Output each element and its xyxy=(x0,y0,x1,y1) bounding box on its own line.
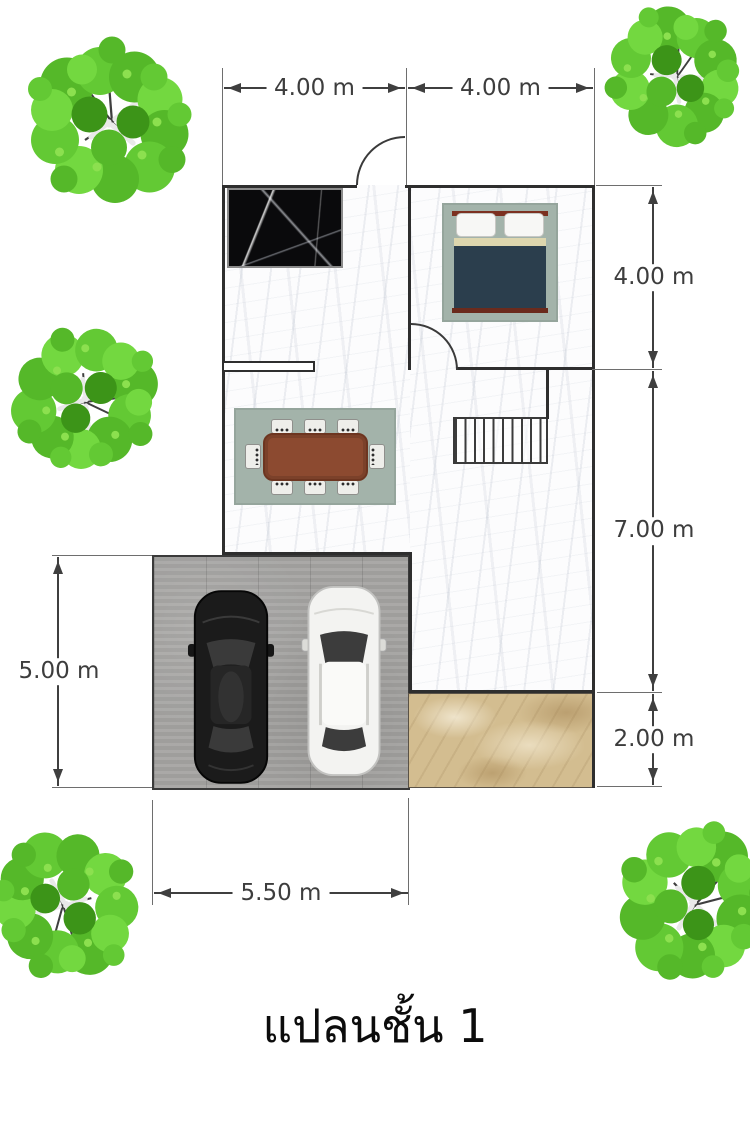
dimension-top-left: 4.00 m xyxy=(224,87,405,89)
dimension-label: 2.00 m xyxy=(606,726,703,754)
extension-line xyxy=(594,68,595,185)
dimension-label: 5.00 m xyxy=(11,658,108,686)
extension-line xyxy=(52,787,152,788)
floor-plan-title: แปลนชั้น 1 xyxy=(0,990,750,1063)
door-swing-arc-entry xyxy=(357,137,405,185)
dimension-right-upper: 4.00 m xyxy=(652,187,654,368)
dimension-label: 4.00 m xyxy=(452,75,549,103)
door-arcs-overlay xyxy=(0,0,750,1124)
dimension-top-right: 4.00 m xyxy=(408,87,593,89)
dimension-bottom: 5.50 m xyxy=(154,892,408,894)
extension-line xyxy=(52,555,152,556)
extension-line xyxy=(597,786,662,787)
dimension-label: 4.00 m xyxy=(266,75,363,103)
floor-plan-canvas: 4.00 m 4.00 m 4.00 m 7.00 m 2.00 m 5.00 … xyxy=(0,0,750,1124)
dimension-label: 4.00 m xyxy=(606,264,703,292)
dimension-label: 7.00 m xyxy=(606,517,703,545)
dimension-right-middle: 7.00 m xyxy=(652,371,654,691)
dimension-left-side: 5.00 m xyxy=(57,557,59,786)
door-swing-arc-bedroom xyxy=(411,324,457,370)
dimension-right-lower: 2.00 m xyxy=(652,694,654,785)
dimension-label: 5.50 m xyxy=(233,880,330,908)
